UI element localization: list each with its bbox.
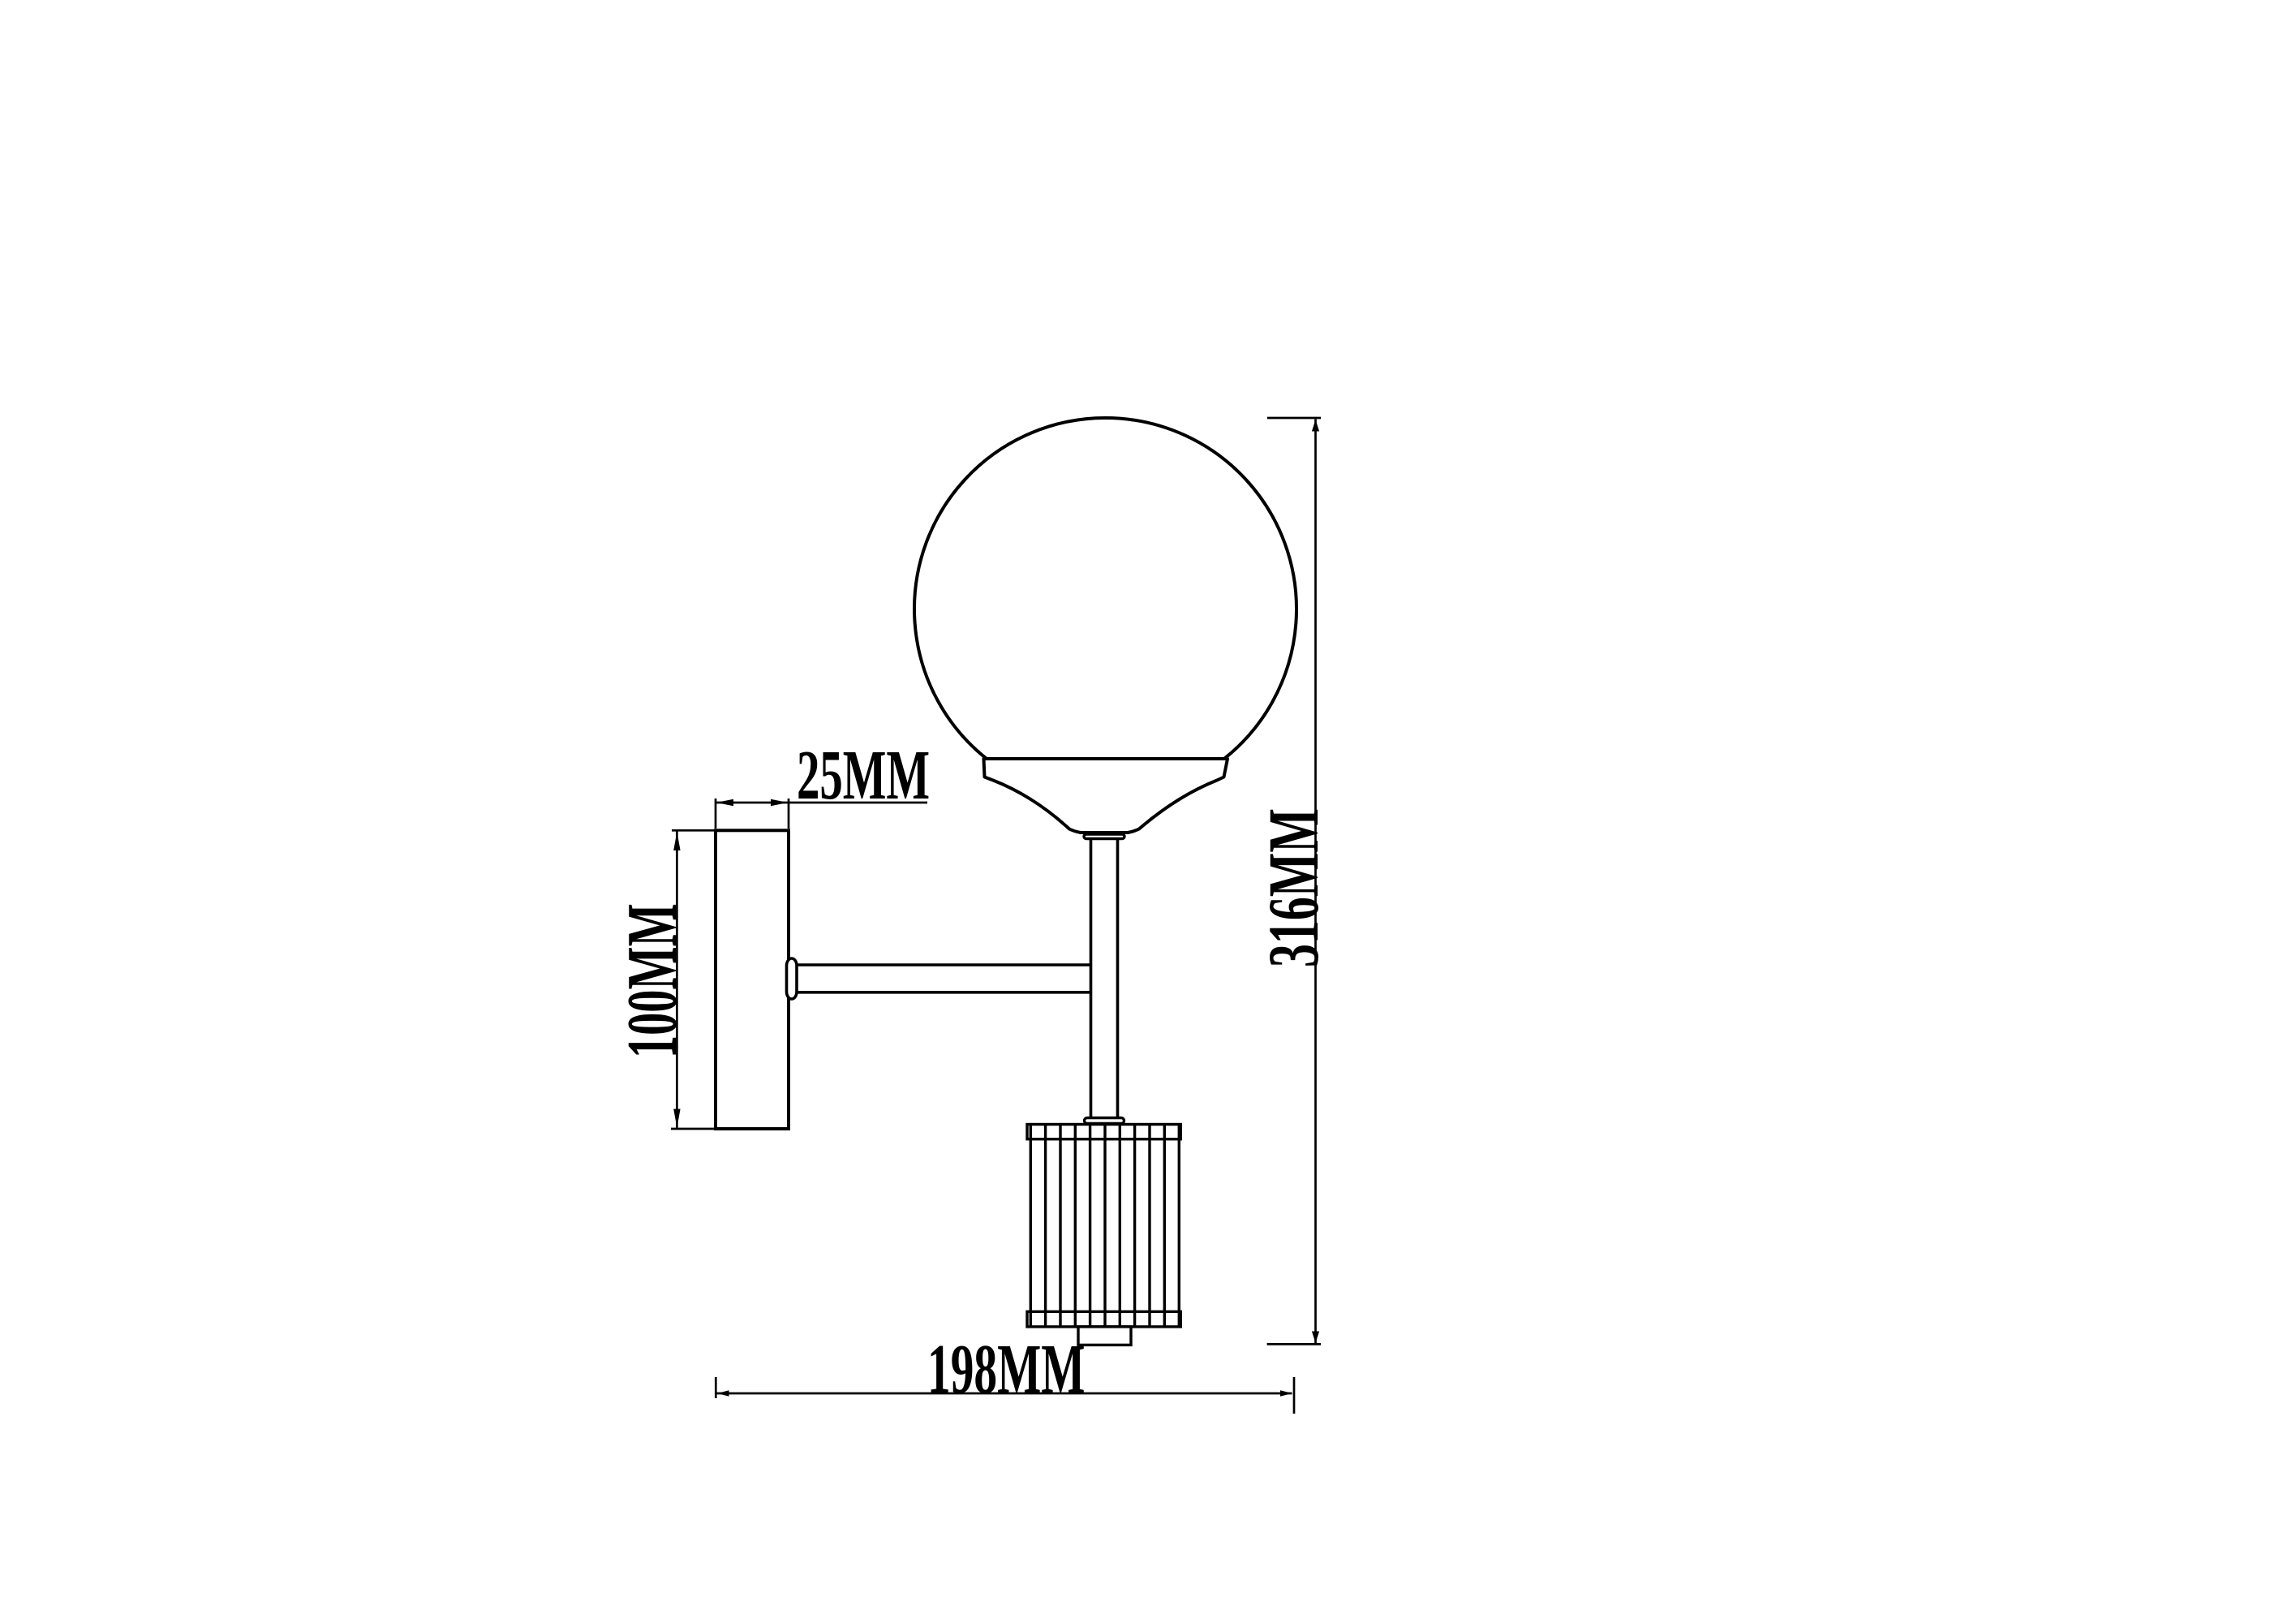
svg-text:25MM: 25MM — [797, 736, 930, 814]
svg-text:100MM: 100MM — [612, 903, 691, 1058]
svg-text:316MM: 316MM — [1254, 808, 1334, 967]
svg-text:198MM: 198MM — [927, 1329, 1085, 1408]
